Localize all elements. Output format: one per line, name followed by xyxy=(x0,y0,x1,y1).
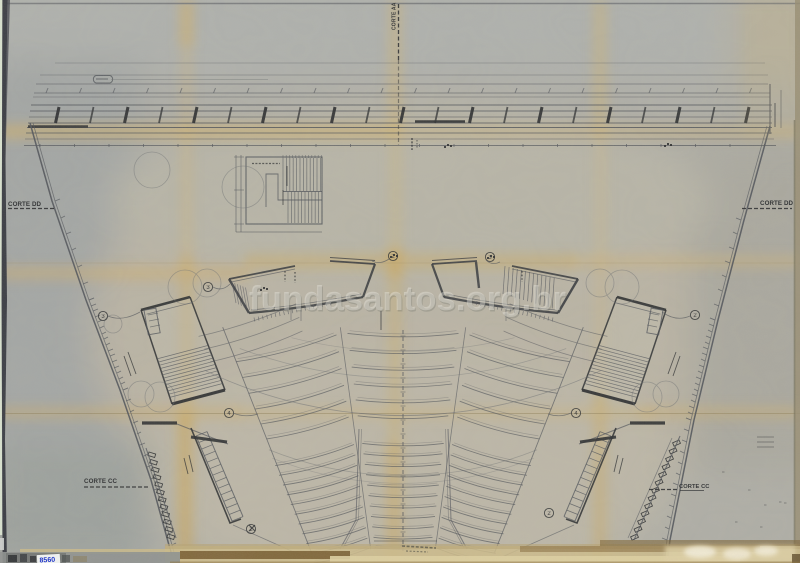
svg-text:8560: 8560 xyxy=(39,557,55,563)
